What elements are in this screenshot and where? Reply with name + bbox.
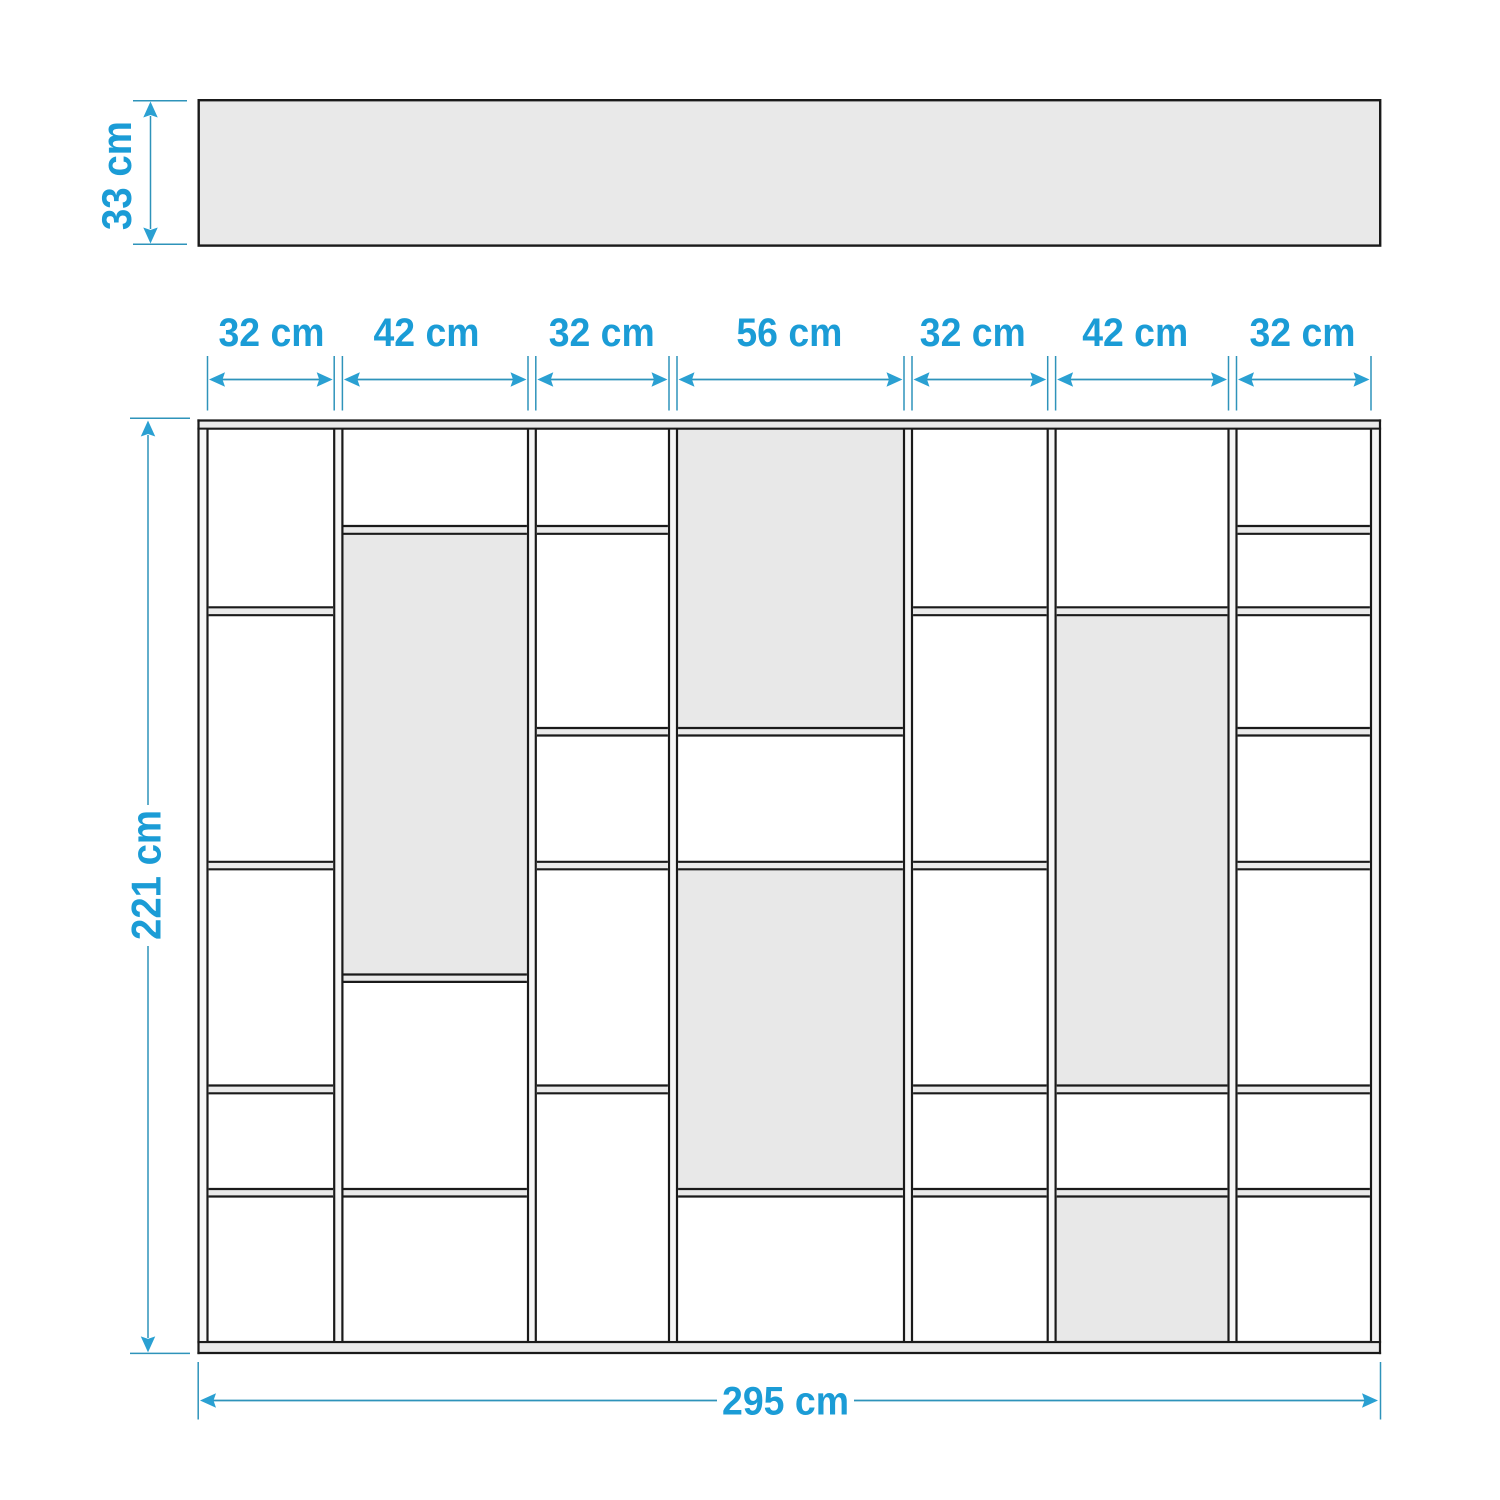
- svg-text:33 cm: 33 cm: [93, 121, 140, 230]
- svg-text:32 cm: 32 cm: [1250, 311, 1356, 355]
- svg-text:32 cm: 32 cm: [549, 311, 655, 355]
- svg-text:56 cm: 56 cm: [736, 311, 842, 355]
- svg-text:42 cm: 42 cm: [1082, 311, 1188, 355]
- svg-text:221 cm: 221 cm: [123, 810, 170, 940]
- svg-text:42 cm: 42 cm: [374, 311, 480, 355]
- svg-text:32 cm: 32 cm: [219, 311, 325, 355]
- svg-text:295 cm: 295 cm: [722, 1380, 849, 1424]
- svg-text:32 cm: 32 cm: [920, 311, 1026, 355]
